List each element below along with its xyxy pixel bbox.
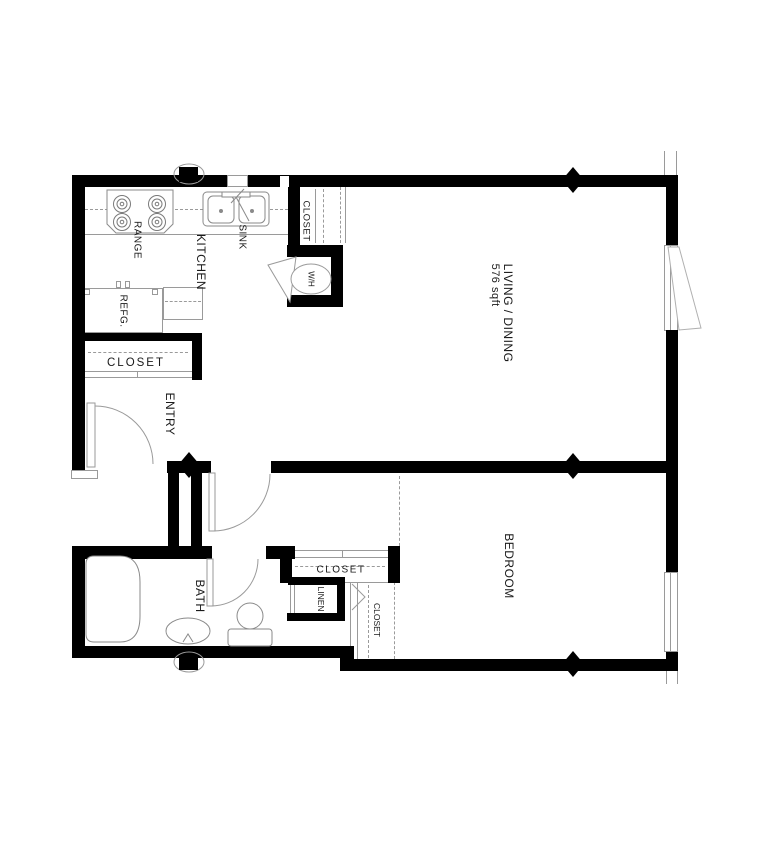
entry-door-arc (95, 406, 153, 464)
casement-swing (668, 247, 701, 330)
floor-plan: KITCHEN RANGE SINK REFG. CLOSET W/H LIVI… (0, 0, 760, 844)
label-entry: ENTRY (163, 393, 177, 436)
bedroom-door-arc (213, 474, 270, 531)
label-living-dining: LIVING / DINING 576 sqft (489, 264, 515, 363)
toilet-tank (228, 629, 272, 646)
label-bath: BATH (193, 579, 207, 612)
bath-door-leaf (207, 559, 213, 606)
water-heater (268, 257, 331, 302)
entry-door-leaf (87, 403, 95, 467)
label-kitchen-closet: CLOSET (301, 200, 312, 241)
bath-door-arc (211, 559, 258, 606)
label-living-dining-name: LIVING / DINING (501, 264, 515, 363)
label-kitchen: KITCHEN (194, 234, 208, 290)
label-living-dining-area: 576 sqft (489, 264, 501, 363)
label-linen: LINEN (316, 586, 326, 611)
bifold-door-mark (352, 584, 365, 610)
label-refrigerator: REFG. (118, 294, 129, 327)
label-range: RANGE (132, 221, 143, 259)
label-entry-closet: CLOSET (107, 357, 165, 369)
label-bedroom: BEDROOM (502, 533, 516, 599)
bathtub (86, 556, 140, 642)
label-bedroom-closet-2: CLOSET (372, 603, 382, 637)
label-sink: SINK (237, 224, 248, 249)
label-water-heater: W/H (307, 271, 316, 287)
kitchen-sink (203, 189, 269, 226)
toilet-bowl (237, 603, 263, 629)
bedroom-door-leaf (209, 473, 215, 531)
bath-sink (166, 618, 210, 644)
label-bedroom-closet: CLOSET (316, 565, 365, 576)
fixtures-layer (0, 0, 760, 844)
